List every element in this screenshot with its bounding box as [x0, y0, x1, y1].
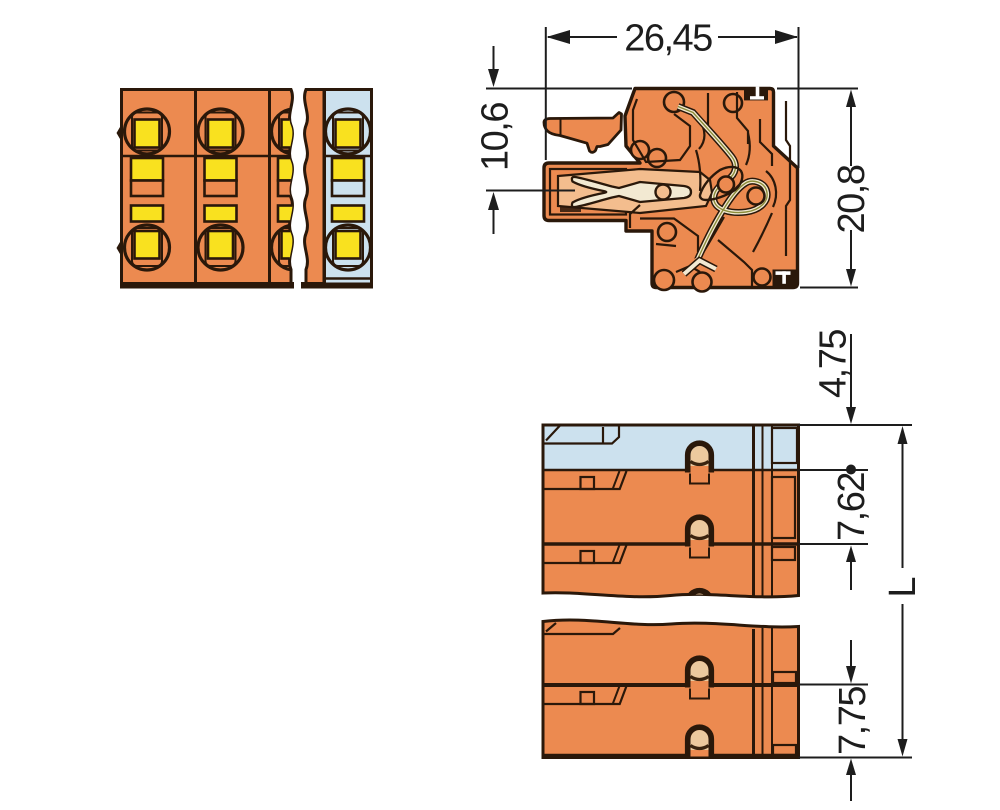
svg-text:10,6: 10,6 — [475, 103, 517, 171]
svg-text:7,75: 7,75 — [832, 687, 874, 755]
svg-text:20,8: 20,8 — [831, 165, 873, 233]
svg-text:26,45: 26,45 — [624, 18, 712, 60]
svg-text:L: L — [882, 576, 924, 597]
svg-text:4,75: 4,75 — [813, 330, 855, 398]
svg-text:7,62: 7,62 — [831, 473, 873, 541]
